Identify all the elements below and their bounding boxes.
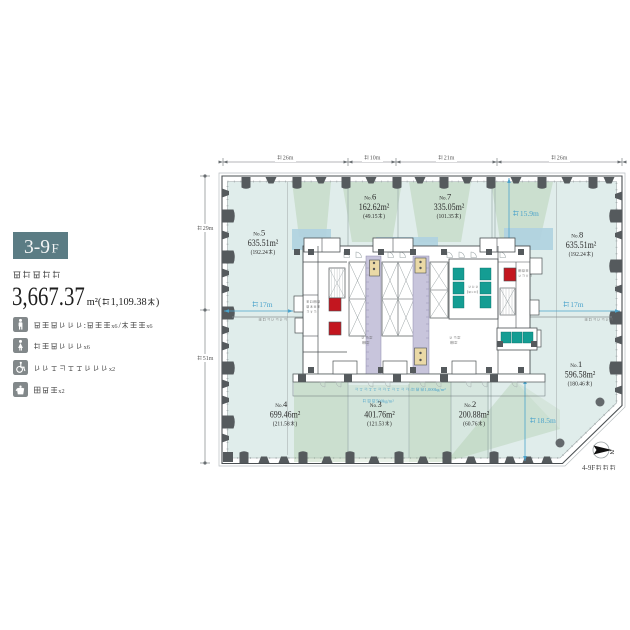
svg-text:26m: 26m bbox=[557, 156, 568, 162]
svg-text:1: 1 bbox=[578, 359, 582, 369]
svg-text:): ) bbox=[591, 251, 593, 258]
svg-text:): ) bbox=[590, 380, 592, 387]
svg-text:10m: 10m bbox=[370, 156, 381, 162]
svg-text:): ) bbox=[273, 249, 275, 256]
svg-text:29m: 29m bbox=[203, 226, 214, 232]
svg-text:): ) bbox=[390, 420, 392, 427]
svg-text:51m: 51m bbox=[203, 356, 214, 362]
svg-text::: : bbox=[410, 387, 411, 392]
svg-text:): ) bbox=[295, 420, 297, 427]
svg-text:401.76m²: 401.76m² bbox=[364, 409, 395, 420]
svg-text:3-9: 3-9 bbox=[24, 237, 50, 258]
svg-text:635.51m²: 635.51m² bbox=[248, 237, 279, 248]
svg-text:4-9F: 4-9F bbox=[582, 464, 595, 472]
svg-text:17m: 17m bbox=[259, 300, 273, 309]
svg-text:699.46m²: 699.46m² bbox=[270, 409, 301, 420]
svg-text:(180.46: (180.46 bbox=[568, 380, 585, 387]
svg-text:1,109.38: 1,109.38 bbox=[111, 297, 147, 308]
svg-text:7: 7 bbox=[447, 192, 451, 202]
svg-text:26m: 26m bbox=[283, 156, 294, 162]
svg-text:635.51m²: 635.51m² bbox=[566, 239, 597, 250]
svg-text:6: 6 bbox=[372, 192, 376, 202]
svg-text:): ) bbox=[459, 213, 461, 220]
svg-text:m²(: m²( bbox=[87, 297, 102, 308]
svg-text:(192.24: (192.24 bbox=[569, 251, 586, 258]
svg-text:x2: x2 bbox=[58, 388, 64, 395]
svg-text:5: 5 bbox=[261, 228, 265, 238]
svg-text:x6: x6 bbox=[146, 323, 152, 330]
svg-text:/: / bbox=[119, 320, 122, 330]
svg-text:F: F bbox=[52, 241, 59, 256]
svg-text:x2: x2 bbox=[109, 366, 115, 373]
svg-text:3,667.37: 3,667.37 bbox=[12, 283, 85, 312]
svg-text:335.05m²: 335.05m² bbox=[434, 201, 465, 212]
svg-text:200.88m²: 200.88m² bbox=[459, 409, 490, 420]
svg-text:(211.58: (211.58 bbox=[273, 420, 290, 427]
svg-text:(49.15: (49.15 bbox=[363, 213, 377, 220]
svg-text:21m: 21m bbox=[444, 156, 455, 162]
svg-text:2: 2 bbox=[472, 399, 476, 409]
svg-text:15.9m: 15.9m bbox=[520, 209, 539, 218]
svg-text:(121.53: (121.53 bbox=[367, 420, 384, 427]
svg-text:x6: x6 bbox=[84, 344, 90, 351]
svg-text:(101.35: (101.35 bbox=[437, 213, 454, 220]
svg-text:596.58m²: 596.58m² bbox=[565, 369, 596, 380]
svg-text:N: N bbox=[608, 450, 614, 455]
svg-text::: : bbox=[84, 320, 86, 330]
svg-text:3: 3 bbox=[378, 399, 382, 409]
svg-text:): ) bbox=[156, 297, 159, 308]
svg-text:162.62m²: 162.62m² bbox=[359, 201, 390, 212]
svg-text:): ) bbox=[383, 213, 385, 220]
svg-text:8: 8 bbox=[579, 230, 583, 240]
svg-text:(60.76: (60.76 bbox=[463, 420, 477, 427]
svg-text:x6: x6 bbox=[111, 323, 117, 330]
svg-text:18.5m: 18.5m bbox=[537, 416, 556, 425]
svg-text:17m: 17m bbox=[570, 300, 584, 309]
svg-text:): ) bbox=[483, 420, 485, 427]
svg-text:(192.24: (192.24 bbox=[251, 249, 268, 256]
